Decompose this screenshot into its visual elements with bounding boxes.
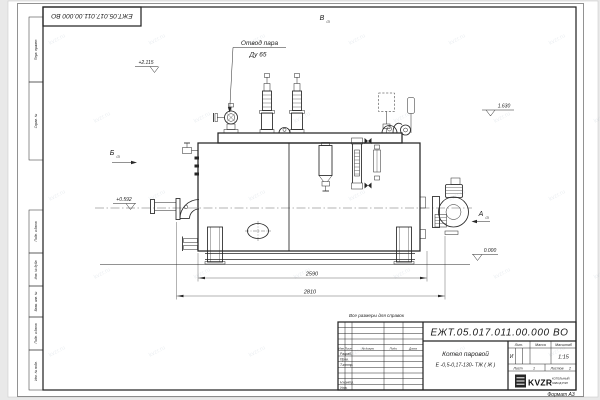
- side-label-3: Подп. и дата: [34, 221, 38, 241]
- side-label-2: Справ. №: [34, 113, 38, 128]
- callout-line1: Отвод пара: [241, 39, 279, 47]
- top-stamp-number: ЕЖТ.05.017.011.00.000 ВО: [51, 12, 132, 19]
- svg-text:2810: 2810: [303, 290, 317, 296]
- lit-header: Лит.: [514, 343, 523, 347]
- mass-header: Масса: [535, 343, 546, 347]
- side-label-5: Взам. инв. №: [34, 291, 38, 311]
- row-utv: Утв.: [340, 386, 348, 390]
- col-doc: № докум.: [362, 346, 375, 350]
- callout-line2: Ду 65: [249, 52, 267, 59]
- sheets-value: 2: [568, 366, 571, 370]
- side-label-6: Подп. и дата: [34, 323, 38, 343]
- col-date: Дата: [408, 346, 417, 350]
- svg-text:2590: 2590: [305, 272, 319, 278]
- svg-text:Котел паровой: Котел паровой: [442, 350, 489, 358]
- company-name: KVZR: [528, 378, 552, 388]
- company-sub1: КОТЕЛЬНЫЙ: [552, 377, 570, 381]
- side-label-7: Инв. № подл.: [34, 361, 38, 381]
- svg-text:+2.115: +2.115: [138, 60, 153, 66]
- col-list: Лист: [344, 346, 353, 350]
- sheets-label: Листов: [549, 366, 563, 370]
- reference-note: Все размеры для справок: [349, 313, 405, 318]
- row-tkontr: Т.контр.: [340, 363, 353, 367]
- side-label-1: Перв. примен.: [34, 39, 38, 60]
- doc-number: ЕЖТ.05.017.011.00.000 ВО: [431, 328, 569, 339]
- sheet-label: Лист: [512, 366, 522, 370]
- sheet-value: 1: [533, 366, 535, 370]
- company-sub2: ЗАВОД РЭП: [552, 381, 568, 385]
- svg-text:Е -0,5-0,17-130- ТЖ ( Ж ): Е -0,5-0,17-130- ТЖ ( Ж ): [436, 363, 496, 369]
- svg-text:А: А: [478, 211, 484, 218]
- scale-value: 1:15: [558, 355, 570, 361]
- svg-text:Б: Б: [110, 150, 115, 157]
- scale-header: Масштаб: [555, 343, 573, 347]
- side-label-4: Инв. № дубл.: [34, 260, 38, 280]
- svg-text:+0.592: +0.592: [116, 197, 132, 203]
- row-nkontr: Н.контр.: [340, 380, 354, 384]
- drawing-sheet-screenshot: kvzr.rukvzr.rukvzr.rukvzr.rukvzr.rukvzr.…: [0, 0, 600, 400]
- lit-value: И: [510, 354, 514, 360]
- svg-text:(2): (2): [485, 216, 489, 220]
- engineering-drawing: kvzr.rukvzr.rukvzr.rukvzr.rukvzr.rukvzr.…: [0, 0, 600, 400]
- svg-text:0.000: 0.000: [484, 248, 497, 254]
- svg-text:В: В: [320, 15, 325, 22]
- format-note: Формат А3: [547, 392, 575, 398]
- col-sign: Подп.: [390, 346, 398, 350]
- svg-text:(2): (2): [326, 20, 330, 24]
- row-prov: Пров.: [340, 357, 349, 361]
- row-razrab: Разраб.: [340, 352, 352, 356]
- svg-text:1.630: 1.630: [498, 104, 511, 110]
- svg-text:(2): (2): [116, 155, 120, 159]
